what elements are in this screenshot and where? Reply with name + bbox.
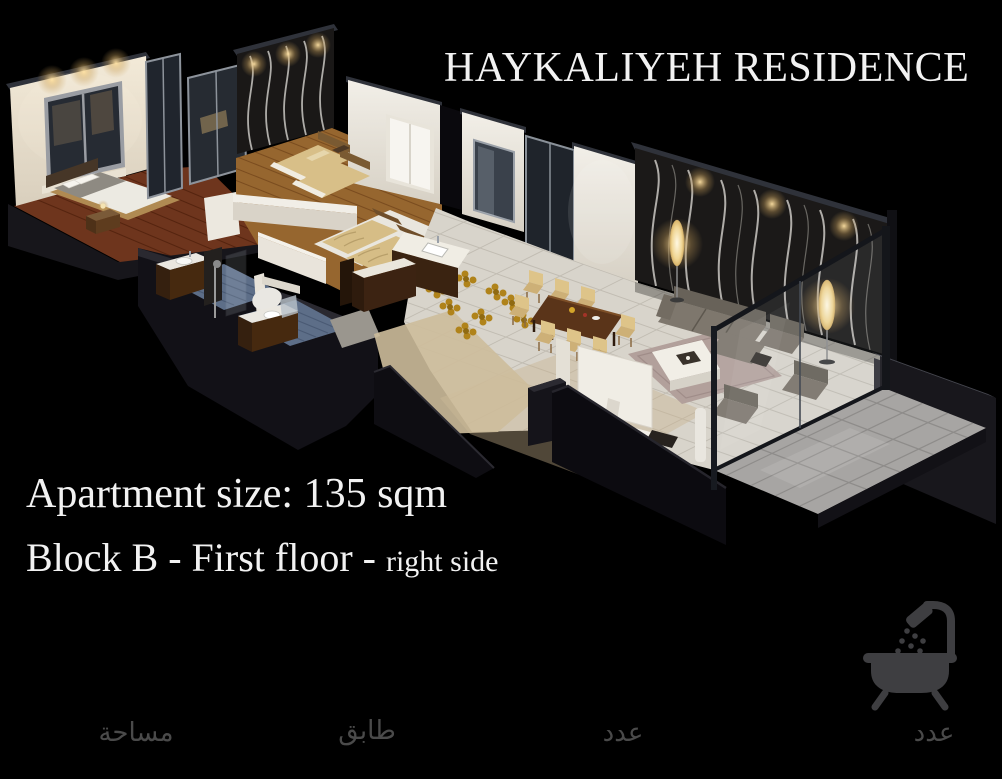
poster: HAYKALIYEH RESIDENCE Apartment size: 135… — [0, 0, 1002, 779]
footer-label-count-1: عدد — [603, 718, 644, 748]
floorplan-render — [0, 0, 1002, 779]
block-floor-text: Block B - First floor -right side — [26, 534, 498, 581]
apartment-size-text: Apartment size: 135 sqm — [26, 470, 447, 518]
footer-label-floor: طابق — [338, 716, 396, 746]
footer-label-count-2: عدد — [914, 718, 955, 748]
footer-label-area: مساحة — [98, 718, 173, 748]
block-floor-side: right side — [386, 545, 499, 578]
block-floor-main: Block B - First floor - — [26, 535, 376, 580]
bathtub-shower-icon — [857, 593, 963, 715]
page-title: HAYKALIYEH RESIDENCE — [444, 44, 969, 92]
